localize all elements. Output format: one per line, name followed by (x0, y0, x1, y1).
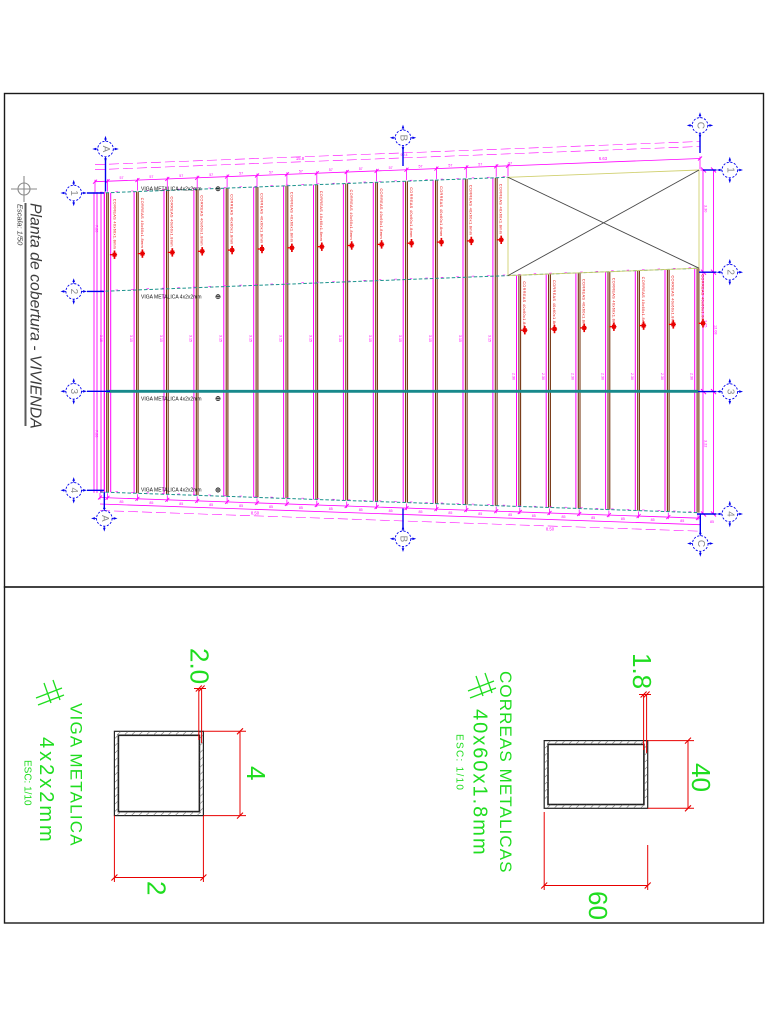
svg-text:12.08: 12.08 (714, 325, 718, 335)
svg-text:3: 3 (68, 389, 79, 395)
svg-text:CORREAS 40x60x1.8mm: CORREAS 40x60x1.8mm (611, 278, 616, 328)
svg-text:3.15: 3.15 (219, 335, 223, 342)
svg-text:2: 2 (724, 269, 735, 275)
svg-text:CORREAS 40x60x1.8mm: CORREAS 40x60x1.8mm (700, 274, 705, 324)
svg-text:CORREAS 40x60x1.8mm: CORREAS 40x60x1.8mm (112, 199, 117, 249)
svg-text:2.30: 2.30 (690, 373, 694, 380)
svg-text:3: 3 (724, 389, 735, 395)
svg-text:2: 2 (142, 881, 172, 895)
svg-text:VIGA METALICA 4x2x2mm: VIGA METALICA 4x2x2mm (141, 488, 201, 494)
svg-text:ESC: 1/10: ESC: 1/10 (22, 760, 33, 806)
svg-text:85: 85 (508, 513, 512, 517)
svg-text:2.30: 2.30 (630, 373, 634, 380)
svg-text:85: 85 (299, 506, 303, 510)
svg-text:2.30: 2.30 (660, 373, 664, 380)
svg-text:2: 2 (68, 289, 79, 295)
svg-text:85: 85 (120, 500, 124, 504)
svg-text:CORREAS 40x60x1.8mm: CORREAS 40x60x1.8mm (349, 190, 354, 240)
svg-text:8.50: 8.50 (251, 510, 260, 515)
svg-text:3.15: 3.15 (159, 335, 163, 342)
svg-text:CORREAS 40x60x1.8mm: CORREAS 40x60x1.8mm (140, 198, 145, 248)
svg-text:40x60x1.8mm: 40x60x1.8mm (469, 709, 491, 857)
svg-text:57: 57 (149, 175, 153, 179)
svg-text:3.15: 3.15 (99, 335, 103, 342)
svg-text:57: 57 (179, 174, 183, 178)
svg-text:57: 57 (299, 169, 303, 173)
svg-text:3.15: 3.15 (458, 335, 462, 342)
svg-text:2.30: 2.30 (511, 373, 515, 380)
svg-text:85: 85 (710, 520, 714, 524)
svg-text:85: 85 (209, 503, 213, 507)
svg-text:Planta de cobertura - VIVIENDA: Planta de cobertura - VIVIENDA (27, 203, 44, 429)
svg-text:1.8: 1.8 (627, 653, 657, 689)
svg-text:3.15: 3.15 (308, 335, 312, 342)
svg-text:2.30: 2.30 (600, 373, 604, 380)
svg-text:CORREAS 40x60x1.8mm: CORREAS 40x60x1.8mm (582, 279, 587, 329)
svg-text:85: 85 (532, 514, 536, 518)
svg-text:85: 85 (621, 517, 625, 521)
svg-text:C: C (695, 540, 706, 547)
svg-text:A: A (99, 515, 110, 522)
svg-text:4: 4 (68, 488, 79, 494)
svg-text:85: 85 (269, 505, 273, 509)
svg-text:2.0: 2.0 (185, 648, 215, 684)
svg-text:4x2x2mm: 4x2x2mm (35, 737, 57, 845)
svg-text:85: 85 (591, 516, 595, 520)
svg-text:40: 40 (686, 763, 716, 792)
svg-text:57: 57 (329, 168, 333, 172)
svg-text:3.15: 3.15 (278, 335, 282, 342)
svg-text:85: 85 (680, 519, 684, 523)
svg-text:Escala: 1/50: Escala: 1/50 (16, 204, 25, 246)
svg-text:85: 85 (179, 502, 183, 506)
svg-text:7.28: 7.28 (95, 430, 99, 437)
svg-text:2.30: 2.30 (571, 373, 575, 380)
svg-text:3.30: 3.30 (704, 205, 708, 212)
svg-text:3.15: 3.15 (368, 335, 372, 342)
svg-text:85: 85 (651, 518, 655, 522)
svg-text:85: 85 (329, 507, 333, 511)
svg-text:85: 85 (562, 515, 566, 519)
svg-text:1: 1 (724, 167, 735, 173)
svg-text:57: 57 (209, 173, 213, 177)
svg-text:57: 57 (448, 164, 452, 168)
svg-text:85: 85 (149, 501, 153, 505)
svg-text:CORREAS 40x60x1.8mm: CORREAS 40x60x1.8mm (289, 192, 294, 242)
svg-text:3.15: 3.15 (249, 335, 253, 342)
svg-text:3.15: 3.15 (338, 335, 342, 342)
svg-text:B: B (398, 134, 409, 141)
svg-text:CORREAS 40x60x1.8mm: CORREAS 40x60x1.8mm (522, 281, 527, 331)
svg-text:3.15: 3.15 (129, 335, 133, 342)
svg-text:1: 1 (68, 190, 79, 196)
svg-text:B: B (398, 535, 409, 542)
svg-text:85: 85 (448, 511, 452, 515)
svg-text:CORREAS 40x60x1.8mm: CORREAS 40x60x1.8mm (230, 194, 235, 244)
svg-text:CORREAS 40x60x1.8mm: CORREAS 40x60x1.8mm (170, 196, 175, 246)
svg-text:60: 60 (583, 891, 613, 920)
svg-text:57: 57 (359, 167, 363, 171)
svg-text:A: A (100, 146, 111, 153)
svg-text:57: 57 (239, 172, 243, 176)
svg-text:4: 4 (724, 511, 735, 517)
svg-text:3.22: 3.22 (704, 440, 708, 447)
svg-text:85: 85 (359, 508, 363, 512)
svg-text:57: 57 (269, 171, 273, 175)
svg-text:4: 4 (241, 766, 271, 780)
svg-text:3.15: 3.15 (428, 335, 432, 342)
svg-text:CORREAS 40x60x1.8mm: CORREAS 40x60x1.8mm (379, 188, 384, 238)
svg-text:57: 57 (389, 166, 393, 170)
svg-text:CORREAS 40x60x1.8mm: CORREAS 40x60x1.8mm (671, 275, 676, 325)
svg-text:3.15: 3.15 (189, 335, 193, 342)
svg-text:VIGA METALICA 4x2x2mm: VIGA METALICA 4x2x2mm (141, 396, 201, 402)
svg-text:3.15: 3.15 (488, 335, 492, 342)
svg-text:CORREAS 40x60x1.8mm: CORREAS 40x60x1.8mm (439, 186, 444, 236)
svg-text:C: C (695, 122, 706, 129)
svg-text:ESC: 1/10: ESC: 1/10 (454, 734, 465, 791)
svg-text:CORREAS 40x60x1.8mm: CORREAS 40x60x1.8mm (319, 191, 324, 241)
svg-text:CORREAS 40x60x1.8mm: CORREAS 40x60x1.8mm (200, 195, 205, 245)
svg-text:57: 57 (508, 161, 512, 165)
svg-text:CORREAS 40x60x1.8mm: CORREAS 40x60x1.8mm (641, 277, 646, 327)
svg-text:57: 57 (120, 176, 124, 180)
svg-text:90.4: 90.4 (401, 153, 408, 157)
svg-text:CORREAS 40x60x1.8mm: CORREAS 40x60x1.8mm (499, 184, 504, 234)
svg-text:VIGA METALICA: VIGA METALICA (67, 703, 86, 847)
svg-text:8.50: 8.50 (546, 527, 555, 532)
svg-text:57: 57 (478, 162, 482, 166)
svg-text:85: 85 (239, 504, 243, 508)
svg-text:6.63: 6.63 (599, 156, 608, 161)
svg-text:CORREAS 40x60x1.8mm: CORREAS 40x60x1.8mm (259, 193, 264, 243)
svg-text:85: 85 (389, 509, 393, 513)
svg-text:CORREAS 40x60x1.8mm: CORREAS 40x60x1.8mm (409, 187, 414, 237)
svg-text:CORREAS 40x60x1.8mm: CORREAS 40x60x1.8mm (469, 185, 474, 235)
svg-text:85: 85 (419, 510, 423, 514)
svg-text:15.8: 15.8 (296, 156, 305, 161)
svg-text:2.30: 2.30 (541, 373, 545, 380)
svg-text:VIGA METALICA 4x2x2mm: VIGA METALICA 4x2x2mm (141, 294, 201, 300)
svg-text:7.28: 7.28 (95, 225, 99, 232)
svg-text:85: 85 (478, 512, 482, 516)
svg-text:57: 57 (419, 165, 423, 169)
svg-text:3.15: 3.15 (398, 335, 402, 342)
svg-text:CORREAS METALICAS: CORREAS METALICAS (496, 671, 515, 874)
svg-text:VIGA METALICA 4x2x2mm: VIGA METALICA 4x2x2mm (141, 187, 201, 193)
svg-text:CORREAS 40x60x1.8mm: CORREAS 40x60x1.8mm (552, 280, 557, 330)
